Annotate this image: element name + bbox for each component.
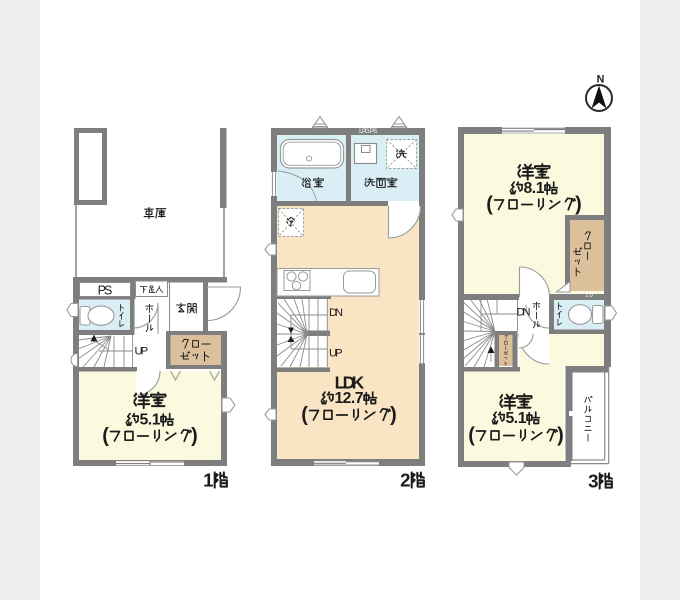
svg-text:7: 7 bbox=[355, 390, 364, 407]
svg-text:1: 1 bbox=[518, 410, 527, 427]
svg-text:S: S bbox=[373, 128, 377, 135]
svg-text:1: 1 bbox=[536, 180, 545, 197]
svg-text:(: ( bbox=[468, 425, 475, 447]
svg-text:2: 2 bbox=[400, 470, 410, 491]
svg-text:P: P bbox=[335, 348, 343, 360]
svg-text:(: ( bbox=[301, 404, 308, 426]
svg-text:N: N bbox=[335, 307, 343, 319]
svg-text:0: 0 bbox=[590, 293, 593, 299]
svg-text:S: S bbox=[104, 284, 112, 298]
svg-text:): ) bbox=[191, 425, 198, 447]
svg-text:P: P bbox=[141, 346, 149, 358]
svg-text:(: ( bbox=[486, 194, 493, 216]
svg-text:1: 1 bbox=[152, 412, 161, 429]
svg-text:): ) bbox=[575, 194, 582, 216]
svg-text:N: N bbox=[597, 74, 605, 86]
svg-text:3: 3 bbox=[588, 471, 598, 492]
svg-text:N: N bbox=[522, 307, 530, 319]
svg-text:(: ( bbox=[102, 425, 109, 447]
svg-text:1: 1 bbox=[203, 470, 213, 491]
svg-text:): ) bbox=[557, 425, 564, 447]
svg-text:): ) bbox=[390, 404, 397, 426]
